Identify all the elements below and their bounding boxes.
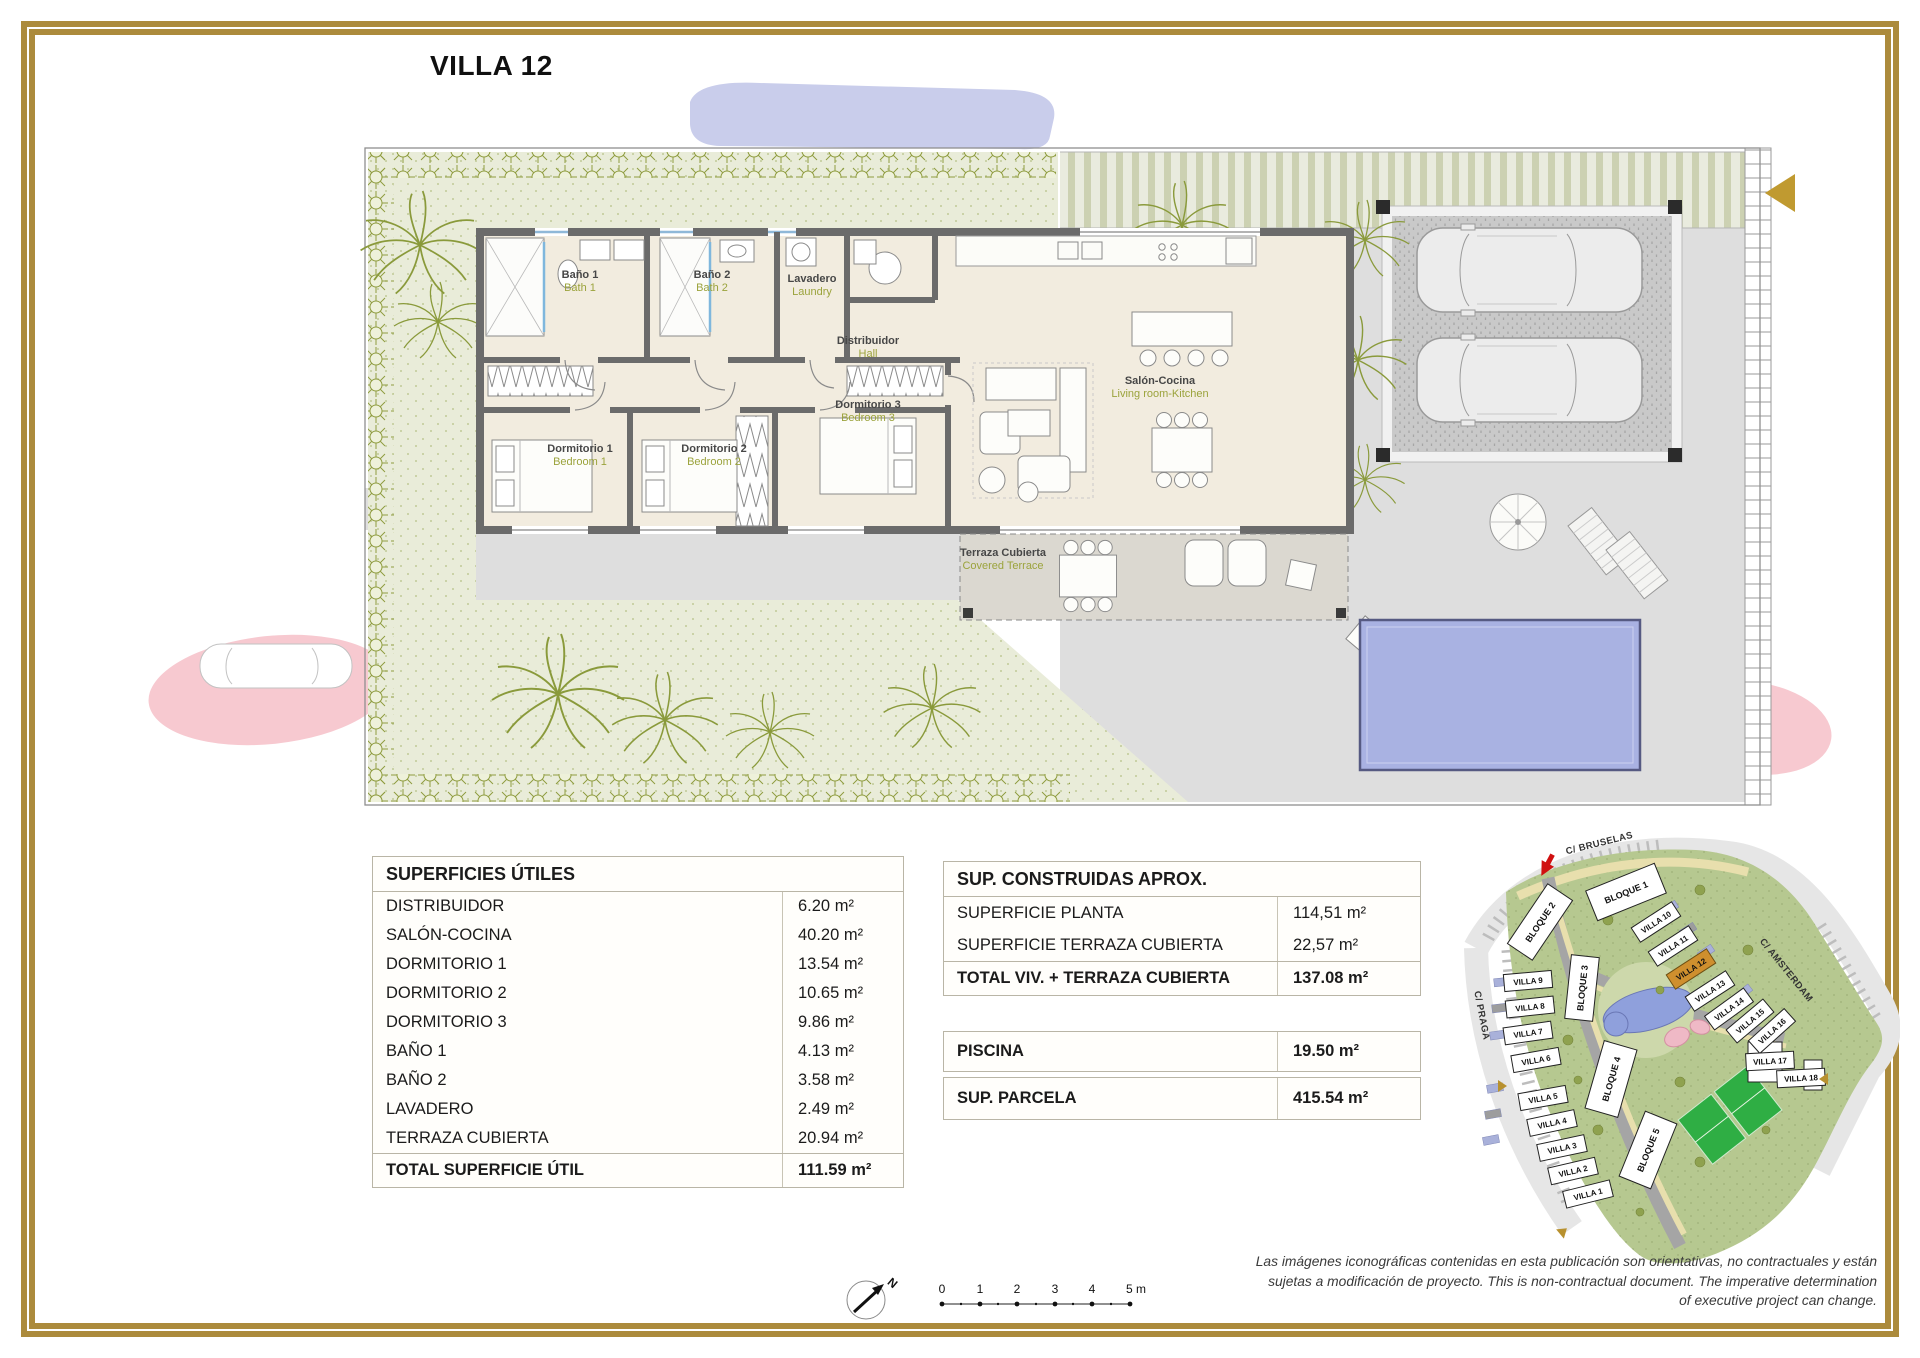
hedge-top bbox=[370, 152, 1056, 178]
sink bbox=[720, 240, 754, 262]
label-bedroom1-es: Dormitorio 1 bbox=[547, 443, 612, 455]
floor-plan: Baño 1 Bath 1 Baño 2 Bath 2 Lavadero Lau… bbox=[120, 60, 1850, 830]
neighbour-building-pink-left bbox=[143, 624, 397, 757]
table-total-row: TOTAL VIV. + TERRAZA CUBIERTA137.08 m² bbox=[944, 961, 1420, 995]
built-surfaces-title: SUP. CONSTRUIDAS APROX. bbox=[944, 862, 1420, 897]
parasol bbox=[1490, 494, 1546, 550]
table-row: BAÑO 14.13 m² bbox=[373, 1037, 903, 1066]
label-bedroom2-es: Dormitorio 2 bbox=[681, 443, 746, 455]
swimming-pool bbox=[1360, 620, 1640, 770]
label-living-en: Living room-Kitchen bbox=[1111, 388, 1208, 400]
car-silhouette bbox=[200, 644, 352, 688]
label-bath1-es: Baño 1 bbox=[562, 269, 599, 281]
shower bbox=[486, 238, 544, 336]
label-bedroom1-en: Bedroom 1 bbox=[553, 456, 607, 468]
dining-table bbox=[1152, 413, 1212, 488]
disclaimer-text: Las imágenes iconográficas contenidas en… bbox=[1255, 1252, 1877, 1311]
label-laundry-es: Lavadero bbox=[788, 273, 837, 285]
label-hall-en: Hall bbox=[859, 348, 878, 360]
plan-sheet: { "page": { "title": "VILLA 12" }, "colo… bbox=[0, 0, 1920, 1358]
map-villa-17: VILLA 17 bbox=[1746, 1051, 1795, 1070]
side-table bbox=[1286, 560, 1317, 591]
bed bbox=[820, 418, 916, 494]
scale-bar: 0 1 2 3 4 5 m bbox=[939, 1282, 1146, 1306]
sink bbox=[614, 240, 644, 260]
svg-text:1: 1 bbox=[977, 1282, 984, 1296]
pool-surface-row: PISCINA 19.50 m² bbox=[943, 1031, 1421, 1072]
label-laundry-en: Laundry bbox=[792, 286, 832, 298]
map-villa-18: VILLA 18 bbox=[1777, 1068, 1826, 1087]
hedge-bottom bbox=[370, 774, 1070, 802]
terrace-table bbox=[1060, 540, 1117, 611]
north-and-scale: N 0 1 2 3 4 5 m bbox=[830, 1270, 1160, 1350]
label-bedroom2-en: Bedroom 2 bbox=[687, 456, 741, 468]
label-bedroom3-en: Bedroom 3 bbox=[841, 412, 895, 424]
svg-text:N: N bbox=[885, 1275, 901, 1291]
useful-surfaces-table: SUPERFICIES ÚTILES DISTRIBUIDOR6.20 m² S… bbox=[372, 856, 904, 1188]
table-row: DORMITORIO 113.54 m² bbox=[373, 950, 903, 979]
table-row: DORMITORIO 210.65 m² bbox=[373, 979, 903, 1008]
house bbox=[476, 228, 1354, 534]
svg-text:3: 3 bbox=[1052, 1282, 1059, 1296]
label-bath1-en: Bath 1 bbox=[564, 282, 596, 294]
table-row: SUPERFICIE PLANTA114,51 m² bbox=[944, 897, 1420, 929]
label-terrace-en: Covered Terrace bbox=[962, 560, 1043, 572]
car-top-view bbox=[1417, 224, 1642, 316]
table-row: SUPERFICIE TERRAZA CUBIERTA22,57 m² bbox=[944, 929, 1420, 961]
svg-text:2: 2 bbox=[1014, 1282, 1021, 1296]
neighbour-building-blue bbox=[690, 83, 1054, 150]
built-surfaces-table: SUP. CONSTRUIDAS APROX. SUPERFICIE PLANT… bbox=[943, 861, 1421, 996]
label-living-es: Salón-Cocina bbox=[1125, 375, 1196, 387]
map-villa-9: VILLA 9 bbox=[1503, 970, 1552, 991]
label-bath2-en: Bath 2 bbox=[696, 282, 728, 294]
site-map: BLOQUE 1 BLOQUE 2 BLOQUE 3 BLOQUE 4 BLOQ… bbox=[1448, 830, 1900, 1270]
table-row: LAVADERO2.49 m² bbox=[373, 1095, 903, 1124]
carport bbox=[1376, 200, 1682, 462]
svg-text:5 m: 5 m bbox=[1126, 1282, 1146, 1296]
svg-text:4: 4 bbox=[1089, 1282, 1096, 1296]
table-row: TERRAZA CUBIERTA20.94 m² bbox=[373, 1124, 903, 1153]
table-row: SALÓN-COCINA40.20 m² bbox=[373, 921, 903, 950]
washer bbox=[786, 238, 816, 266]
svg-text:0: 0 bbox=[939, 1282, 946, 1296]
hedge-left bbox=[368, 152, 394, 802]
plot-surface-row: SUP. PARCELA 415.54 m² bbox=[943, 1077, 1421, 1120]
kitchen-counter bbox=[956, 236, 1256, 266]
svg-text:VILLA 18: VILLA 18 bbox=[1784, 1073, 1819, 1084]
wc bbox=[854, 240, 876, 264]
sink bbox=[580, 240, 610, 260]
north-arrow: N bbox=[847, 1275, 900, 1319]
label-hall-es: Distribuidor bbox=[837, 335, 900, 347]
table-row: BAÑO 23.58 m² bbox=[373, 1066, 903, 1095]
useful-surfaces-title: SUPERFICIES ÚTILES bbox=[373, 857, 903, 892]
car-top-view bbox=[1417, 334, 1642, 426]
table-row: DISTRIBUIDOR6.20 m² bbox=[373, 892, 903, 921]
map-block-3: BLOQUE 3 bbox=[1565, 955, 1600, 1022]
label-bath2-es: Baño 2 bbox=[694, 269, 731, 281]
label-bedroom3-es: Dormitorio 3 bbox=[835, 399, 900, 411]
table-total-row: TOTAL SUPERFICIE ÚTIL111.59 m² bbox=[373, 1153, 903, 1187]
table-row: DORMITORIO 39.86 m² bbox=[373, 1008, 903, 1037]
svg-text:VILLA 17: VILLA 17 bbox=[1753, 1056, 1788, 1067]
label-terrace-es: Terraza Cubierta bbox=[960, 547, 1047, 559]
